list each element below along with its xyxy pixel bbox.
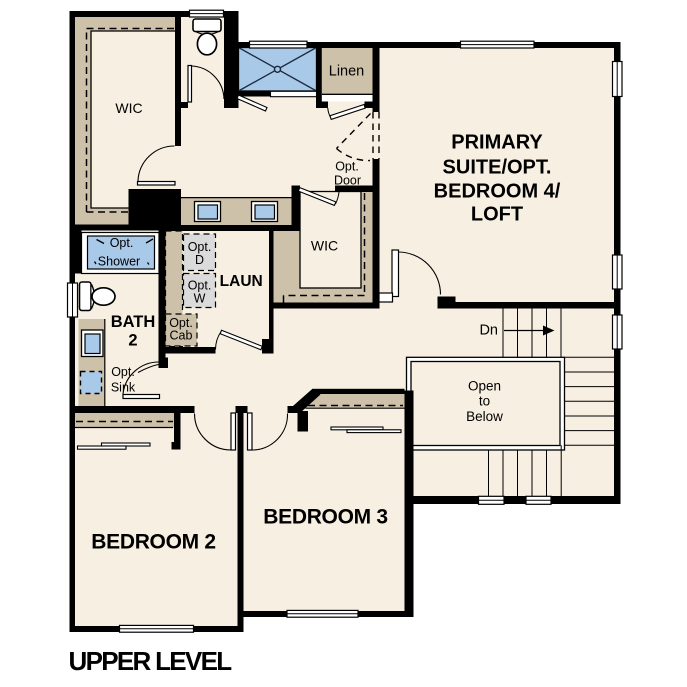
svg-text:Opt.: Opt. — [188, 279, 212, 293]
svg-text:BEDROOM 2: BEDROOM 2 — [91, 531, 215, 554]
svg-text:UPPER LEVEL: UPPER LEVEL — [69, 646, 233, 676]
svg-text:LAUN: LAUN — [220, 273, 263, 290]
svg-text:D: D — [195, 253, 204, 267]
svg-text:Sink: Sink — [111, 381, 136, 395]
svg-text:Opt.: Opt. — [188, 240, 212, 254]
svg-text:Door: Door — [334, 174, 361, 188]
svg-text:Dn: Dn — [479, 323, 498, 339]
svg-text:Opt.: Opt. — [111, 365, 135, 379]
svg-text:W: W — [194, 292, 206, 306]
svg-text:Shower: Shower — [98, 254, 140, 268]
svg-text:Open: Open — [468, 379, 501, 394]
svg-text:Linen: Linen — [329, 64, 364, 80]
svg-text:WIC: WIC — [115, 100, 142, 116]
svg-text:BATH: BATH — [111, 313, 156, 331]
svg-text:Below: Below — [466, 409, 503, 424]
svg-text:to: to — [479, 394, 490, 409]
svg-text:Opt.: Opt. — [335, 160, 359, 174]
svg-text:BEDROOM 3: BEDROOM 3 — [263, 506, 387, 529]
svg-text:PRIMARY: PRIMARY — [451, 132, 543, 154]
svg-text:Opt.: Opt. — [110, 236, 134, 250]
svg-text:BEDROOM 4/: BEDROOM 4/ — [434, 181, 561, 203]
svg-text:Cab: Cab — [170, 329, 193, 343]
svg-text:WIC: WIC — [311, 238, 338, 254]
svg-text:2: 2 — [128, 332, 137, 350]
svg-text:SUITE/OPT.: SUITE/OPT. — [443, 157, 552, 179]
svg-text:LOFT: LOFT — [471, 204, 523, 226]
